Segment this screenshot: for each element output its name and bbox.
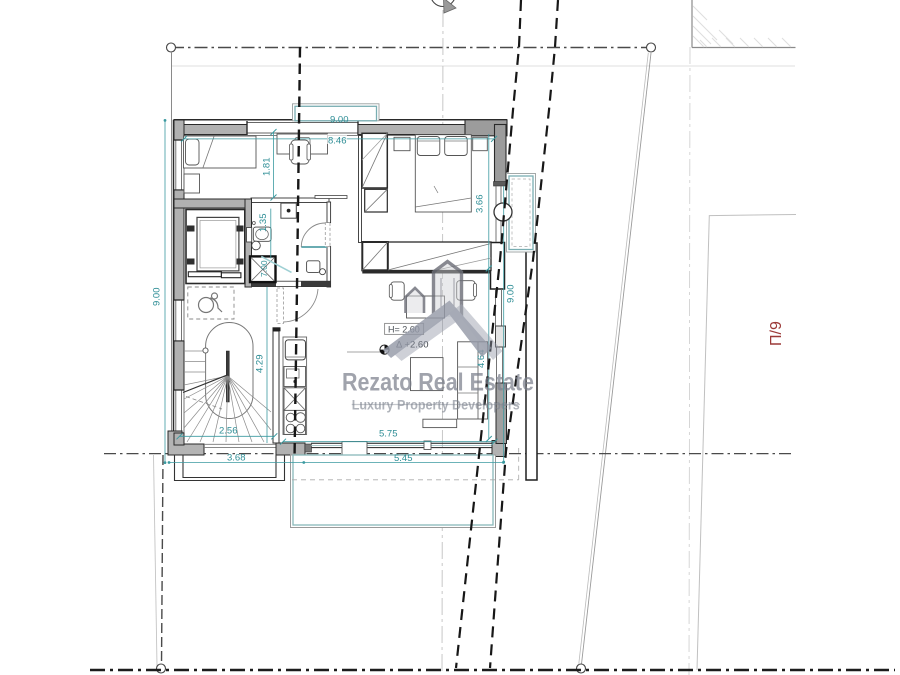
svg-text:9.00: 9.00: [152, 288, 163, 307]
svg-text:Π/9: Π/9: [768, 321, 785, 346]
svg-text:9.00: 9.00: [330, 115, 349, 126]
svg-text:4.29: 4.29: [255, 355, 266, 374]
svg-text:3.68: 3.68: [227, 453, 246, 464]
svg-text:5.75: 5.75: [379, 429, 398, 440]
svg-text:5.45: 5.45: [394, 453, 413, 464]
svg-text:3.66: 3.66: [475, 195, 486, 214]
svg-text:2.56: 2.56: [219, 426, 238, 437]
svg-text:7.00: 7.00: [259, 260, 269, 277]
svg-text:1.35: 1.35: [258, 214, 269, 233]
svg-text:8.46: 8.46: [328, 135, 347, 146]
svg-text:Rezato Real Estate: Rezato Real Estate: [342, 369, 534, 397]
svg-text:1.81: 1.81: [262, 158, 273, 177]
svg-text:9.00: 9.00: [506, 285, 517, 304]
